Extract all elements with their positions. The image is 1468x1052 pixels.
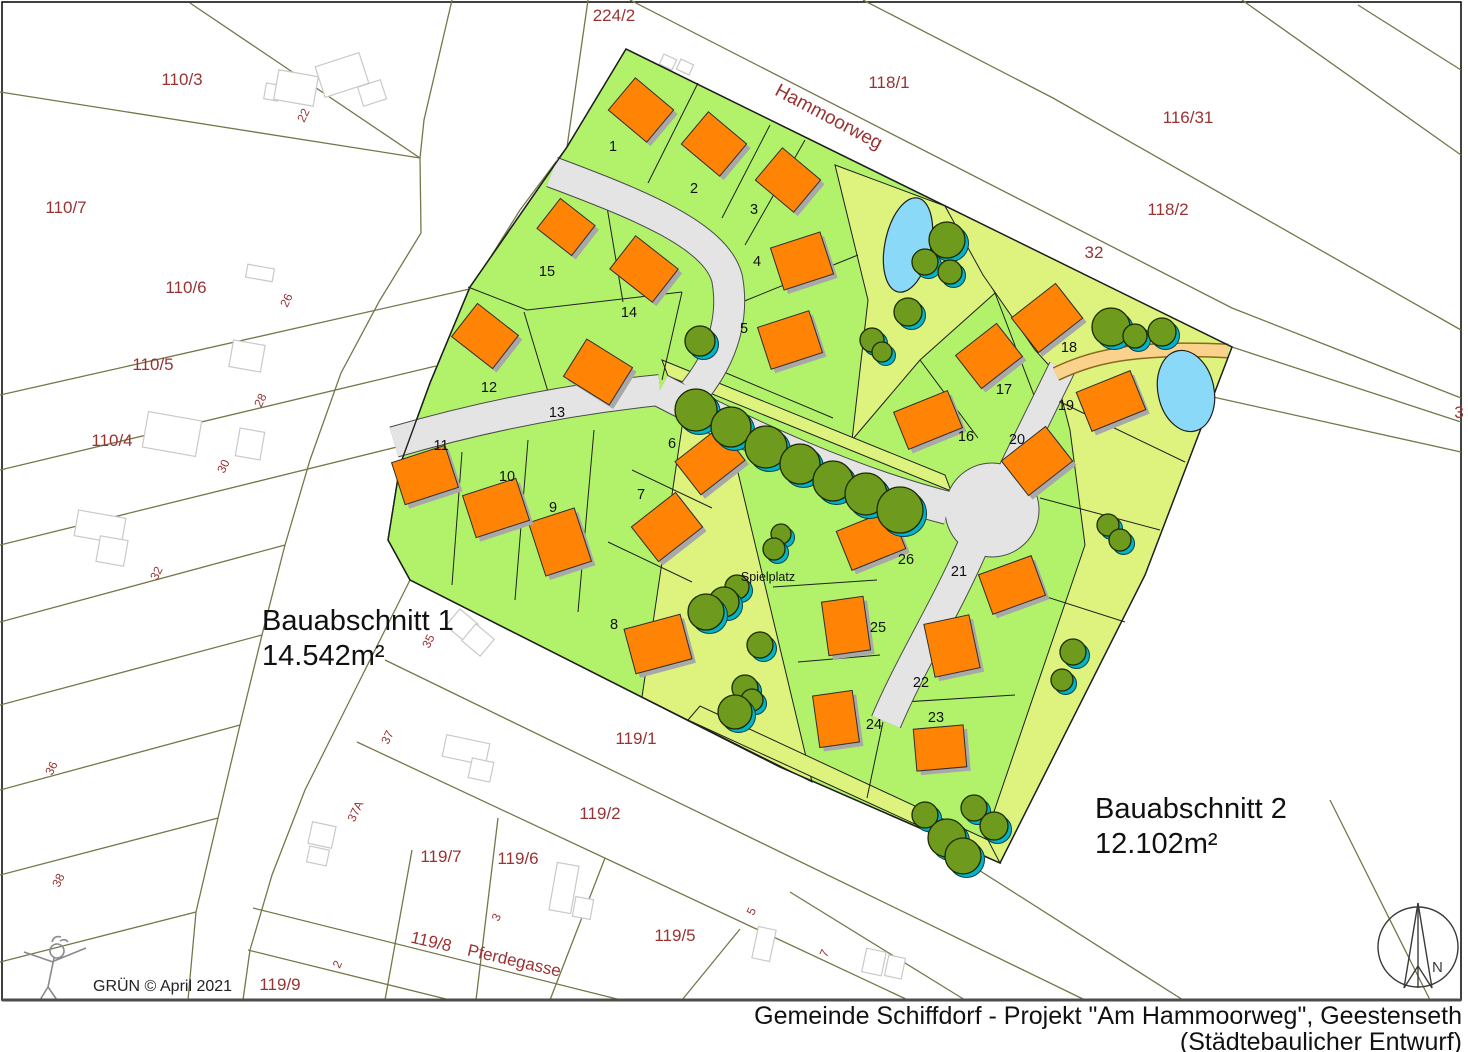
tree <box>1060 639 1086 665</box>
parcel-label: 118/2 <box>1147 200 1188 219</box>
tree <box>872 342 892 362</box>
north-arrow-label: N <box>1432 959 1443 976</box>
bauabschnitt1-area: 14.542m² <box>262 640 385 672</box>
credit-date: April 2021 <box>160 978 232 995</box>
site-plan-map: 224/2118/1116/31118/232110/3110/7110/611… <box>0 0 1468 1052</box>
outbuilding-outline <box>274 70 319 106</box>
outbuilding-outline <box>862 948 887 976</box>
parcel-label: 110/6 <box>165 278 206 297</box>
tree <box>877 487 923 533</box>
parcel-label: 119/5 <box>654 926 695 945</box>
tree <box>945 838 981 874</box>
tree <box>938 260 962 284</box>
tree <box>688 594 724 630</box>
plot-number-label: 3 <box>750 202 758 218</box>
parcel-label: 110/4 <box>91 431 132 450</box>
plot-number-label: 1 <box>609 139 617 155</box>
playground-label: Spielplatz <box>741 570 795 584</box>
parcel-label: 119/6 <box>497 849 538 868</box>
parcel-label: 110/5 <box>132 355 173 374</box>
tree <box>1109 529 1131 551</box>
tree <box>1148 318 1176 346</box>
plot-number-label: 6 <box>668 436 676 452</box>
plot-number-label: 2 <box>690 181 698 197</box>
planned-building <box>821 596 870 655</box>
parcel-label: 32 <box>1085 243 1104 262</box>
outbuilding-outline <box>235 428 264 460</box>
tree <box>912 249 938 275</box>
plot-number-label: 12 <box>481 380 497 396</box>
plot-number-label: 8 <box>610 617 618 633</box>
outbuilding-outline <box>307 846 330 866</box>
plot-number-label: 10 <box>499 469 515 485</box>
tree <box>1123 324 1147 348</box>
plot-number-label: 19 <box>1058 398 1074 414</box>
plot-number-label: 14 <box>621 305 637 321</box>
plot-number-label: 15 <box>539 264 555 280</box>
tree <box>1051 669 1073 691</box>
plot-number-label: 11 <box>433 438 448 454</box>
tree <box>980 812 1008 840</box>
plot-number-label: 22 <box>913 675 929 691</box>
parcel-label: 119/2 <box>579 804 620 823</box>
plot-number-label: 20 <box>1009 432 1025 448</box>
plot-number-label: 18 <box>1061 340 1077 356</box>
parcel-label: 224/2 <box>593 6 636 25</box>
outbuilding-outline <box>572 897 593 920</box>
plot-number-label: 13 <box>549 405 565 421</box>
plot-number-label: 24 <box>866 717 882 733</box>
outbuilding-outline <box>229 340 265 372</box>
bauabschnitt2-area: 12.102m² <box>1095 828 1218 860</box>
parcel-label: 3 <box>1454 403 1463 422</box>
parcel-label: 118/1 <box>868 73 909 92</box>
tree <box>747 632 773 658</box>
plot-number-label: 25 <box>870 620 886 636</box>
tree <box>894 298 922 326</box>
parcel-label: 119/7 <box>420 847 461 866</box>
tree <box>711 407 751 447</box>
outbuilding-outline <box>308 822 336 849</box>
bauabschnitt1-name: Bauabschnitt 1 <box>262 605 454 637</box>
tree <box>763 538 785 560</box>
plot-number-label: 21 <box>951 564 967 580</box>
plot-number-label: 5 <box>740 321 748 337</box>
plot-number-label: 4 <box>753 254 761 270</box>
title-line1: Gemeinde Schiffdorf - Projekt "Am Hammoo… <box>754 1002 1462 1030</box>
parcel-label: 119/1 <box>615 729 656 748</box>
plot-number-label: 9 <box>549 500 557 516</box>
plot-number-label: 16 <box>958 429 974 445</box>
plot-number-label: 17 <box>996 382 1012 398</box>
outbuilding-outline <box>96 536 128 566</box>
outbuilding-outline <box>885 955 906 979</box>
parcel-label: 119/9 <box>259 975 300 994</box>
site-plan-page: 224/2118/1116/31118/232110/3110/7110/611… <box>0 0 1468 1052</box>
planned-building <box>913 725 966 771</box>
tree <box>718 695 752 729</box>
tree <box>685 326 715 356</box>
plot-number-label: 26 <box>898 552 914 568</box>
plot-number-label: 23 <box>928 710 944 726</box>
title-line2: (Städtebaulicher Entwurf) <box>1180 1028 1462 1052</box>
planned-building <box>813 690 860 747</box>
parcel-label: 116/31 <box>1163 108 1214 127</box>
credit-author: GRÜN © <box>93 977 157 995</box>
outbuilding-outline <box>468 758 494 782</box>
bauabschnitt2-name: Bauabschnitt 2 <box>1095 793 1287 825</box>
plot-number-label: 7 <box>637 487 645 503</box>
parcel-label: 110/3 <box>161 70 202 89</box>
parcel-label: 110/7 <box>45 198 86 217</box>
